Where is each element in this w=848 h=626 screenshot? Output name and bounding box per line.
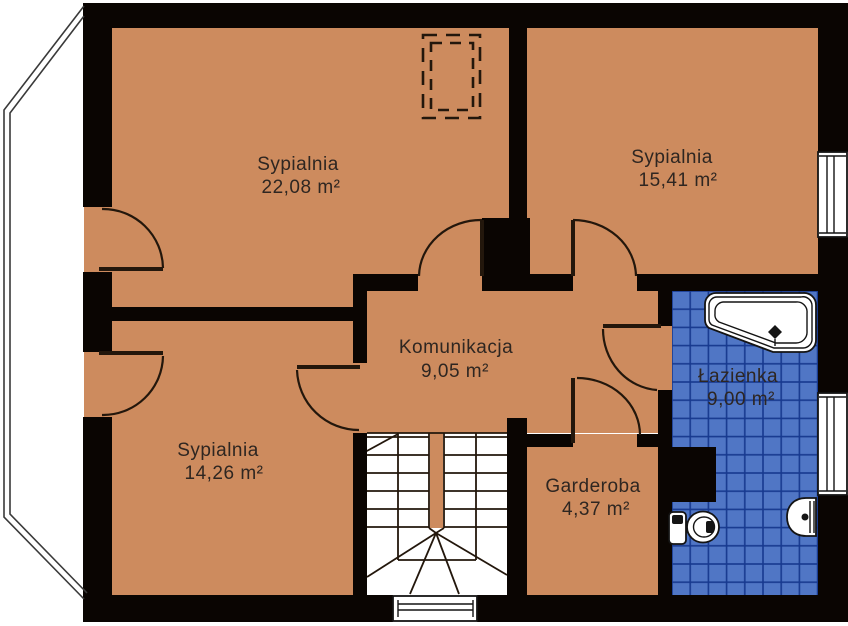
- floor-plan-drawing: Sypialnia 22,08 m² Sypialnia 15,41 m² Ko…: [0, 0, 848, 626]
- room-garderoba-floor: [527, 447, 658, 595]
- staircase-center-strip: [430, 433, 443, 528]
- label-lazienka-area: 9,00 m²: [707, 389, 775, 410]
- label-sypialnia-1-area: 22,08 m²: [262, 177, 341, 198]
- wall-garderoba-top: [525, 434, 573, 447]
- wall-right-lower: [818, 495, 848, 622]
- wall-left-middle: [83, 272, 112, 352]
- wall-hall-left-lower: [353, 433, 367, 595]
- wall-bottom-left: [83, 595, 393, 622]
- toilet-icon: [669, 512, 719, 545]
- wall-bedroom-divider: [509, 3, 527, 218]
- wall-hall-top-a: [353, 274, 418, 291]
- door-gap-sypialnia-3: [353, 363, 367, 433]
- wall-bathroom-left-upper: [658, 291, 672, 326]
- door-gap-sypialnia-2: [573, 274, 637, 291]
- label-garderoba-name: Garderoba: [545, 476, 640, 497]
- wall-chimney-block: [658, 447, 716, 502]
- wall-garderoba-top-stub: [637, 434, 660, 447]
- roof-outline: [4, 6, 87, 599]
- wall-left-lower: [83, 417, 112, 622]
- wall-hall-left-upper: [353, 291, 367, 363]
- room-sypialnia-1-door-recess: [84, 207, 112, 272]
- window-bottom-stairs: [393, 596, 477, 621]
- wall-hall-top-c: [637, 274, 818, 291]
- room-komunikacja-floor: [367, 291, 658, 433]
- label-komunikacja-area: 9,05 m²: [421, 361, 489, 382]
- window-right-bathroom: [818, 393, 847, 495]
- wall-block-between-doors: [482, 218, 530, 291]
- room-sypialnia-3-door-recess: [84, 352, 112, 417]
- wall-bathroom-left-mid: [658, 390, 672, 447]
- door-gap-lazienka: [658, 326, 672, 390]
- wall-top: [83, 3, 848, 28]
- wall-bottom-right: [477, 595, 848, 622]
- wall-left-upper: [83, 3, 112, 207]
- wall-room-divider-left: [112, 307, 353, 321]
- sink-icon: [787, 498, 816, 536]
- label-sypialnia-2-area: 15,41 m²: [639, 170, 718, 191]
- door-gap-garderoba: [573, 434, 637, 447]
- door-gap-sypialnia-1: [418, 274, 482, 291]
- floor-plan-canvas: Sypialnia 22,08 m² Sypialnia 15,41 m² Ko…: [0, 0, 848, 626]
- label-sypialnia-2-name: Sypialnia: [631, 147, 713, 168]
- label-sypialnia-3-area: 14,26 m²: [185, 463, 264, 484]
- label-lazienka-name: Łazienka: [698, 366, 778, 387]
- label-komunikacja-name: Komunikacja: [399, 337, 513, 358]
- wall-right-upper: [818, 28, 848, 152]
- label-sypialnia-3-name: Sypialnia: [177, 440, 259, 461]
- label-garderoba-area: 4,37 m²: [562, 499, 630, 520]
- window-right-bedroom: [818, 152, 847, 237]
- staircase: [365, 433, 507, 595]
- label-sypialnia-1-name: Sypialnia: [257, 154, 339, 175]
- wall-right-middle: [818, 237, 848, 393]
- wall-garderoba-left: [507, 418, 527, 596]
- wall-hall-top-b: [530, 274, 573, 291]
